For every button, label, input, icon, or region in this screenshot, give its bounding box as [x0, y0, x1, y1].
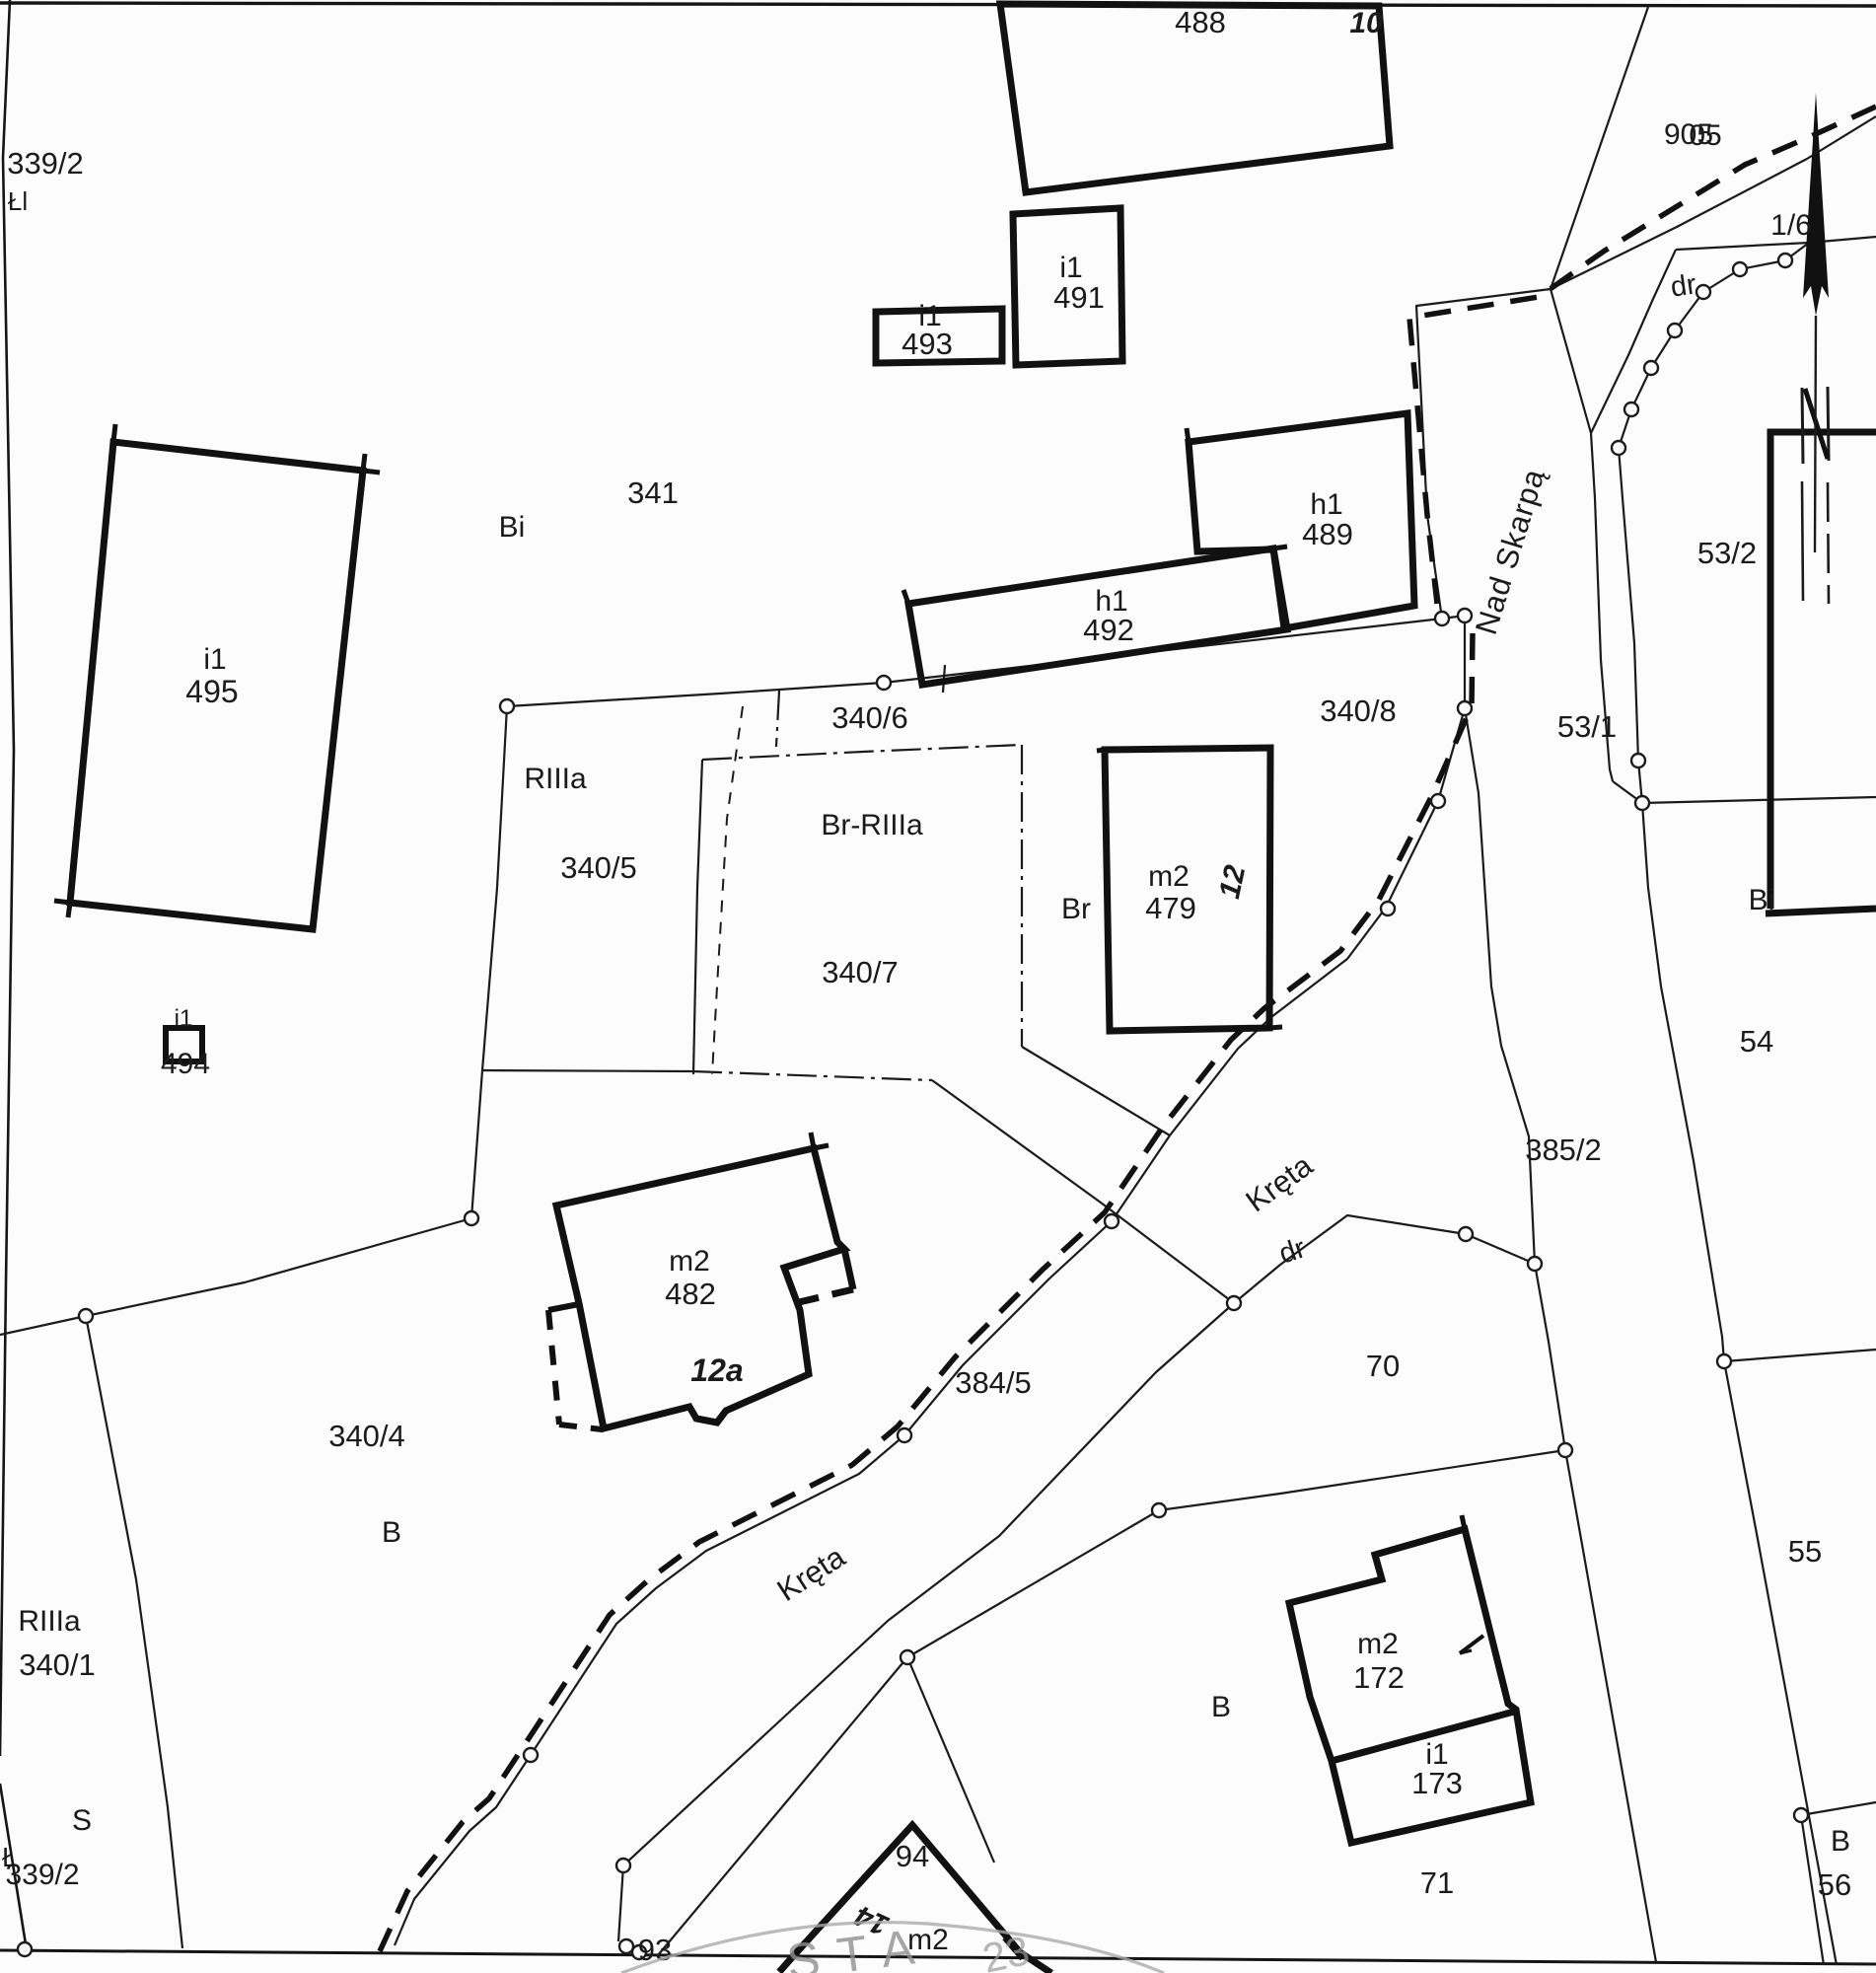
- svg-text:i1: i1: [175, 1005, 193, 1032]
- svg-text:Łl: Łl: [8, 186, 28, 216]
- svg-text:55: 55: [1788, 1534, 1822, 1569]
- svg-text:B: B: [1831, 1825, 1850, 1858]
- svg-text:385/2: 385/2: [1525, 1133, 1602, 1167]
- svg-text:70: 70: [1366, 1349, 1400, 1383]
- svg-text:340/1: 340/1: [19, 1647, 96, 1682]
- svg-text:m2: m2: [669, 1245, 710, 1278]
- svg-text:339/2: 339/2: [7, 146, 84, 181]
- svg-text:495: 495: [185, 674, 238, 709]
- svg-text:Bi: Bi: [1749, 884, 1775, 916]
- svg-text:479: 479: [1145, 891, 1196, 925]
- svg-text:482: 482: [665, 1277, 716, 1311]
- svg-text:172: 172: [1353, 1660, 1405, 1695]
- svg-text:10: 10: [1349, 7, 1383, 39]
- svg-text:71: 71: [1420, 1865, 1454, 1900]
- svg-text:173: 173: [1411, 1766, 1463, 1800]
- svg-text:12a: 12a: [690, 1352, 743, 1388]
- svg-text:Br: Br: [1061, 893, 1091, 925]
- svg-text:340/5: 340/5: [560, 850, 637, 885]
- svg-text:RIIIa: RIIIa: [18, 1605, 81, 1638]
- svg-text:489: 489: [1302, 517, 1353, 551]
- svg-text:m2: m2: [1357, 1628, 1399, 1660]
- svg-text:94: 94: [896, 1839, 929, 1873]
- svg-text:340/6: 340/6: [831, 700, 908, 735]
- svg-text:384/5: 384/5: [955, 1365, 1032, 1400]
- svg-text:54: 54: [1740, 1024, 1773, 1059]
- svg-text:56: 56: [1818, 1867, 1851, 1902]
- svg-text:S: S: [72, 1804, 92, 1837]
- svg-text:492: 492: [1083, 613, 1134, 647]
- svg-text:05: 05: [1689, 119, 1721, 152]
- svg-text:Br-RIIIa: Br-RIIIa: [821, 809, 923, 841]
- svg-text:488: 488: [1175, 5, 1226, 39]
- svg-text:340/4: 340/4: [328, 1419, 405, 1453]
- svg-text:494: 494: [161, 1048, 210, 1080]
- svg-text:53/1: 53/1: [1557, 709, 1617, 744]
- svg-text:dr: dr: [1669, 268, 1698, 303]
- svg-text:B: B: [1211, 1691, 1231, 1723]
- svg-text:53/2: 53/2: [1697, 536, 1757, 570]
- svg-text:340/7: 340/7: [822, 955, 899, 989]
- svg-text:12: 12: [1213, 862, 1252, 902]
- svg-text:RIIIa: RIIIa: [524, 763, 587, 795]
- svg-text:i1: i1: [203, 643, 226, 676]
- svg-text:m2: m2: [1148, 860, 1190, 893]
- svg-text:340/8: 340/8: [1320, 694, 1397, 728]
- svg-text:491: 491: [1053, 280, 1105, 315]
- svg-text:493: 493: [902, 327, 953, 361]
- svg-text:339/2: 339/2: [5, 1859, 79, 1891]
- svg-text:341: 341: [627, 475, 679, 510]
- svg-text:B: B: [382, 1516, 401, 1549]
- svg-text:23: 23: [978, 1927, 1033, 1973]
- svg-text:Bi: Bi: [499, 511, 526, 544]
- svg-text:1/6: 1/6: [1770, 209, 1812, 242]
